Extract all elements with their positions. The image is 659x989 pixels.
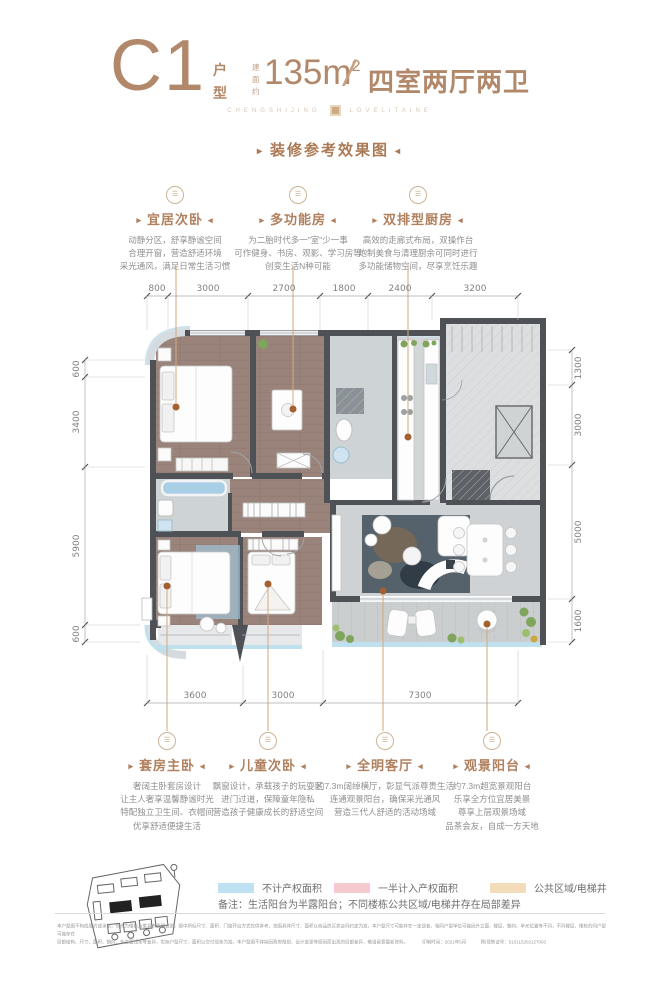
basin-icon <box>158 520 172 531</box>
legend-swatch <box>334 883 370 893</box>
bathtub-icon <box>162 481 226 495</box>
svg-text:3600: 3600 <box>184 691 207 701</box>
toilet-icon <box>158 500 173 516</box>
medal-icon: ☰ <box>158 732 176 750</box>
basin-icon <box>333 447 349 463</box>
svg-text:3000: 3000 <box>272 691 295 701</box>
dining-table <box>454 524 517 576</box>
elevator-icon <box>496 406 532 458</box>
floor-plan: 800 3000 2700 1800 2400 3200 3600 3000 7… <box>0 0 659 989</box>
license-number: 预/现售证号：510115202127003 <box>481 940 546 945</box>
bed-children <box>248 552 295 614</box>
divider <box>55 913 605 914</box>
legend-item-half-property: 一半计入产权面积 <box>334 880 458 895</box>
print-time: 印制时间：2021年5月 <box>422 940 466 945</box>
ac-ledge <box>142 598 152 620</box>
north-marker-icon <box>171 864 178 878</box>
svg-text:3200: 3200 <box>464 284 487 294</box>
entry-doormat <box>452 470 490 500</box>
svg-text:3400: 3400 <box>72 410 82 433</box>
toilet-icon <box>336 419 352 441</box>
svg-text:2400: 2400 <box>389 284 412 294</box>
svg-text:3000: 3000 <box>197 284 220 294</box>
svg-text:800: 800 <box>148 284 165 294</box>
lounge-chair <box>386 609 408 637</box>
callout-view-balcony: ☰ 观景阳台 约7.3m超宽景观阳台 乐享全方位宜居美景 尊享上层观景场域 品茶… <box>412 732 572 833</box>
callout-title: 观景阳台 <box>412 755 572 774</box>
floorplan-poster: C1 户 型 建 面 约 135m2 / 四室两厅两卫 CHENGSHIJING… <box>0 0 659 989</box>
svg-text:1300: 1300 <box>574 356 584 379</box>
medal-icon: ☰ <box>376 732 394 750</box>
svg-text:1800: 1800 <box>333 284 356 294</box>
legend-swatch <box>218 883 254 893</box>
svg-text:600: 600 <box>72 360 82 377</box>
svg-text:1600: 1600 <box>574 609 584 632</box>
svg-text:600: 600 <box>72 625 82 642</box>
medal-icon: ☰ <box>259 732 277 750</box>
lounge-chair <box>414 609 436 637</box>
legend-item-non-property: 不计产权面积 <box>218 880 322 895</box>
highlighted-building <box>109 895 162 913</box>
svg-text:5000: 5000 <box>574 520 584 543</box>
legend-swatch <box>490 883 526 893</box>
svg-text:7300: 7300 <box>409 691 432 701</box>
legend-item-public-area: 公共区域/电梯井 <box>490 880 607 895</box>
svg-text:2700: 2700 <box>273 284 296 294</box>
sink-icon <box>426 364 437 384</box>
medal-icon: ☰ <box>483 732 501 750</box>
tv-console <box>332 515 341 591</box>
svg-text:3000: 3000 <box>574 413 584 436</box>
legend-note: 备注：生活阳台为半露阳台；不同楼栋公共区域/电梯井存在局部差异 <box>218 896 521 911</box>
svg-text:5900: 5900 <box>72 534 82 557</box>
disclaimer: 本户型图不构成要约或承诺，仅作为楼栋及家具布置建议图，图中所标尺寸、面积、门窗开… <box>57 922 607 946</box>
